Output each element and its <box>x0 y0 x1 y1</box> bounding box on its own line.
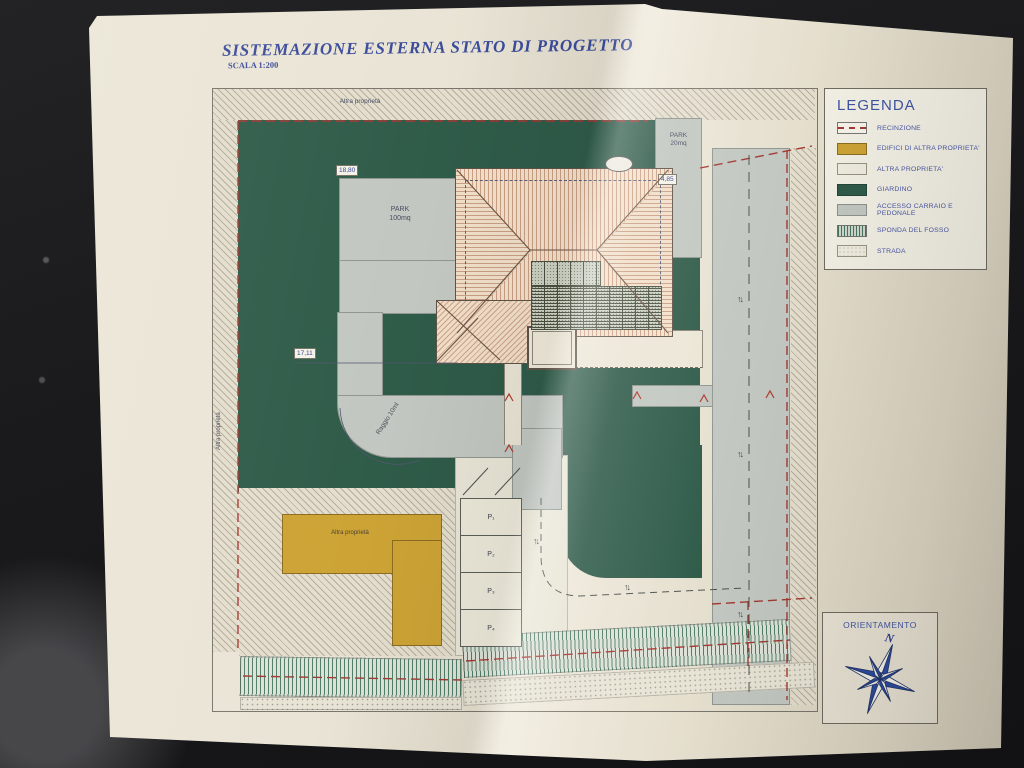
other-property-swatch <box>837 163 867 175</box>
legend-row: STRADA <box>837 245 986 258</box>
garden-swatch <box>837 184 867 196</box>
roof-ridge-lines <box>437 170 668 361</box>
legend-row: ALTRA PROPRIETA' <box>837 163 986 176</box>
guide-lines <box>463 155 749 698</box>
legend: LEGENDA RECINZIONE EDIFICI DI ALTRA PROP… <box>824 88 987 270</box>
legend-row: EDIFICI DI ALTRA PROPRIETA' <box>837 142 986 155</box>
gate-marks <box>505 391 774 452</box>
compass-rose-icon <box>826 627 934 732</box>
ditch-bank-swatch <box>837 225 867 237</box>
legend-row: GIARDINO <box>837 183 986 196</box>
photo-of-site-plan: SISTEMAZIONE ESTERNA STATO DI PROGETTO S… <box>0 0 1024 768</box>
orientation-title: ORIENTAMENTO <box>823 620 937 630</box>
other-buildings-swatch <box>837 143 867 155</box>
legend-row: ACCESSO CARRAIO E PEDONALE <box>837 204 986 217</box>
fence-swatch <box>837 122 867 134</box>
drawing-sheet: SISTEMAZIONE ESTERNA STATO DI PROGETTO S… <box>0 0 1024 768</box>
legend-row: SPONDA DEL FOSSO <box>837 224 986 237</box>
dimension-lines <box>297 363 458 464</box>
legend-row: RECINZIONE <box>837 122 986 135</box>
road-swatch <box>837 245 867 257</box>
fence-lines <box>238 121 812 700</box>
orientation-box: ORIENTAMENTO N <box>822 612 938 724</box>
access-swatch <box>837 204 867 216</box>
legend-title: LEGENDA <box>837 97 986 114</box>
